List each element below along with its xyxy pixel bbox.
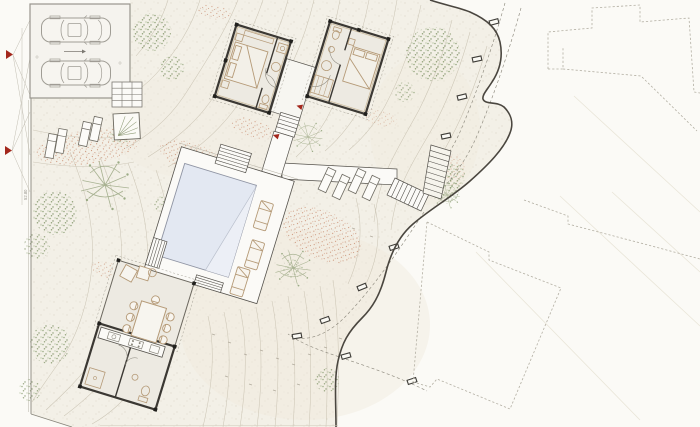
tree: [395, 82, 415, 102]
tree: [19, 379, 41, 401]
site-plan-canvas: 52.80: [0, 0, 700, 427]
car: [42, 16, 111, 45]
planter: [113, 113, 140, 140]
tree: [33, 191, 77, 235]
dimension-label: 52.80: [23, 189, 28, 200]
stepping-stone: [292, 333, 302, 339]
tree: [24, 233, 50, 259]
tree: [160, 56, 184, 80]
tree: [406, 27, 460, 81]
tree: [30, 324, 70, 364]
site-plan-page: 52.80: [0, 0, 700, 427]
garage: [30, 4, 142, 107]
tree: [133, 13, 171, 51]
garage-stairs: [112, 82, 142, 107]
car: [42, 59, 111, 88]
